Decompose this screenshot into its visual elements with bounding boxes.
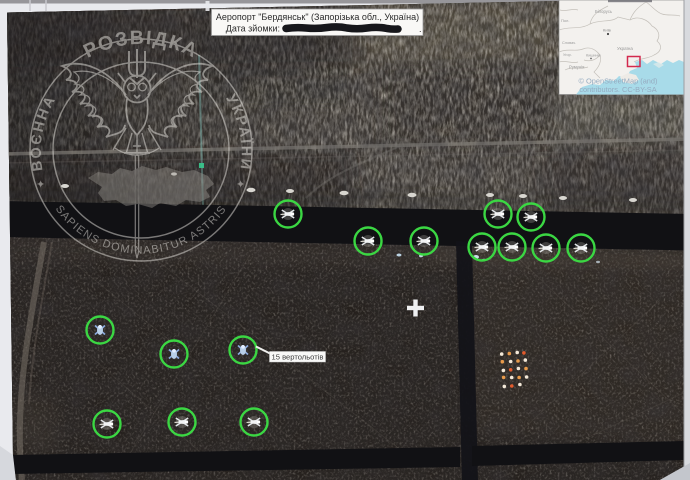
svg-text:✦: ✦	[36, 179, 45, 191]
svg-text:Словач.: Словач.	[562, 41, 576, 45]
svg-text:✦: ✦	[236, 179, 245, 191]
svg-text:Угор.: Угор.	[563, 53, 572, 57]
svg-text:Дата зйомки:: Дата зйомки:	[226, 24, 280, 34]
svg-text:Україна: Україна	[617, 46, 633, 51]
svg-text:Румунія: Румунія	[569, 65, 584, 70]
svg-text:contributors. CC-BY-SA: contributors. CC-BY-SA	[579, 85, 656, 94]
svg-text:Пол.: Пол.	[561, 18, 569, 23]
svg-text:Білорусь: Білорусь	[595, 9, 613, 14]
svg-text:15 вертольотів: 15 вертольотів	[272, 353, 324, 362]
svg-text:Київ: Київ	[603, 28, 611, 33]
svg-text:Кишинів: Кишинів	[586, 54, 600, 58]
svg-text:.: .	[419, 24, 422, 34]
svg-text:Аеропорт "Бердянськ" (Запорізь: Аеропорт "Бердянськ" (Запорізька обл., У…	[216, 12, 419, 22]
